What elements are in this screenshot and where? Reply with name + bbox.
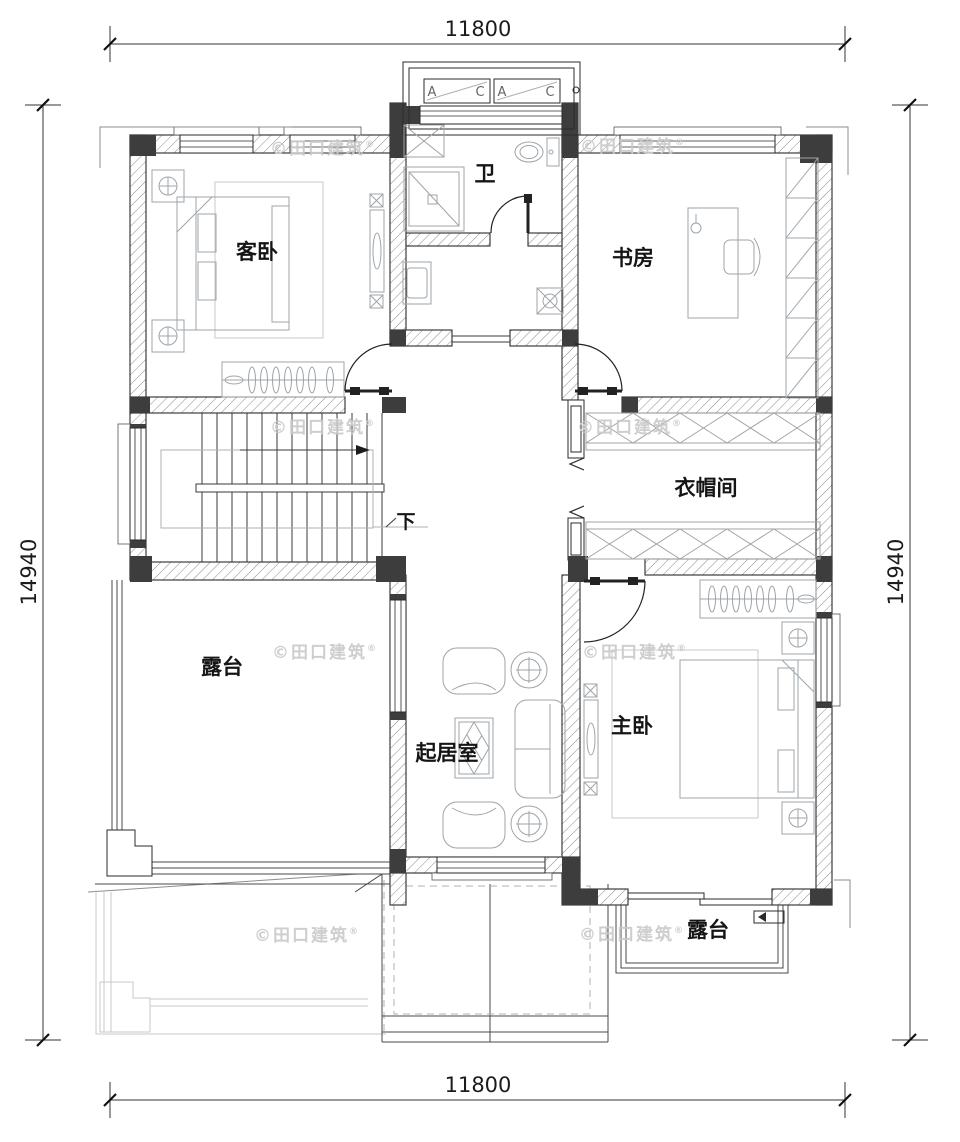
watermark: ©田口建筑® bbox=[272, 642, 378, 663]
window-guest-1 bbox=[180, 135, 253, 153]
stair-handrail bbox=[196, 484, 384, 492]
guest-nightstand-2 bbox=[152, 320, 184, 352]
dimension-top: 11800 bbox=[104, 17, 851, 62]
sliding-door-master-terrace bbox=[628, 893, 772, 905]
room-label-study: 书房 bbox=[612, 246, 654, 270]
dimension-top-value: 11800 bbox=[445, 17, 512, 41]
window-living-west bbox=[390, 600, 406, 712]
bookshelf bbox=[786, 158, 818, 398]
watermark: ©田口建筑® bbox=[580, 136, 686, 157]
room-label-cloakroom: 衣帽间 bbox=[675, 476, 738, 500]
watermark: ©田口建筑® bbox=[579, 924, 685, 945]
bay-label-c1: C bbox=[475, 85, 484, 100]
bath-cabinet bbox=[404, 125, 444, 157]
watermark: ©田口建筑® bbox=[270, 138, 376, 159]
bay-label-a2: A bbox=[498, 85, 507, 100]
sofa bbox=[515, 700, 565, 798]
stair-direction-arrow bbox=[240, 445, 370, 455]
columns bbox=[130, 103, 832, 905]
watermark: ©田口建筑® bbox=[254, 925, 360, 946]
door-bathroom bbox=[491, 194, 532, 233]
cloakroom-wardrobe-bottom bbox=[586, 522, 820, 559]
master-bed bbox=[680, 660, 814, 798]
door-study bbox=[575, 344, 622, 395]
toilet bbox=[515, 138, 559, 166]
terrace-left-railing bbox=[95, 580, 390, 884]
floor-drain bbox=[537, 288, 563, 314]
vanity-sink bbox=[403, 262, 431, 304]
walls bbox=[130, 103, 832, 905]
stairs-down-label: 下 bbox=[396, 511, 415, 533]
terrace-marker bbox=[754, 911, 784, 923]
floor-plan: A C A C bbox=[0, 0, 960, 1142]
corner-shower bbox=[404, 167, 464, 231]
guest-dresser bbox=[370, 194, 384, 308]
bay-label-c2: C bbox=[545, 85, 554, 100]
bay-window: A C A C bbox=[403, 62, 580, 135]
window-stairwell bbox=[130, 428, 146, 540]
tv-console bbox=[584, 684, 598, 795]
watermark: ©田口建筑® bbox=[577, 417, 683, 438]
room-label-living-room: 起居室 bbox=[415, 741, 479, 765]
room-label-terrace-bottom: 露台 bbox=[687, 918, 729, 942]
desk bbox=[688, 208, 738, 318]
master-bedroom-furniture bbox=[584, 580, 816, 834]
room-label-master-bedroom: 主卧 bbox=[611, 714, 653, 738]
floor-plan-page: A C A C bbox=[0, 0, 960, 1142]
dimension-right: 14940 bbox=[884, 99, 928, 1046]
dimension-bottom-value: 11800 bbox=[445, 1073, 512, 1097]
bay-label-a1: A bbox=[428, 85, 437, 100]
room-label-guest-bedroom: 客卧 bbox=[236, 240, 278, 264]
dimension-left-value: 14940 bbox=[17, 539, 41, 606]
window-living-south bbox=[437, 857, 545, 873]
desk-chair bbox=[724, 238, 760, 276]
study-furniture bbox=[688, 158, 818, 398]
dimension-bottom: 11800 bbox=[104, 1073, 851, 1118]
watermark: ©田口建筑® bbox=[582, 642, 688, 663]
door-guest-bedroom bbox=[345, 344, 392, 395]
door-master-bedroom bbox=[584, 577, 645, 642]
master-nightstand-1 bbox=[782, 622, 814, 654]
room-label-bathroom: 卫 bbox=[475, 162, 496, 186]
room-label-terrace-left: 露台 bbox=[201, 655, 243, 679]
guest-bedroom-furniture bbox=[152, 170, 384, 397]
master-nightstand-2 bbox=[782, 802, 814, 834]
guest-wardrobe bbox=[222, 362, 344, 397]
dimension-left: 14940 bbox=[17, 99, 61, 1046]
watermark: ©田口建筑® bbox=[270, 417, 376, 438]
master-wardrobe bbox=[700, 580, 816, 618]
terrace-corner-post bbox=[107, 830, 152, 876]
armchair-bottom bbox=[443, 802, 505, 848]
armchair-top bbox=[443, 648, 505, 694]
dimension-right-value: 14940 bbox=[884, 539, 908, 606]
side-table-bottom bbox=[511, 806, 547, 842]
side-table-top bbox=[511, 652, 547, 688]
window-master bbox=[816, 618, 832, 702]
room-labels: 客卧 卫 书房 衣帽间 露台 起居室 主卧 露台 下 bbox=[201, 162, 738, 942]
lower-roof-outline bbox=[88, 874, 386, 1034]
